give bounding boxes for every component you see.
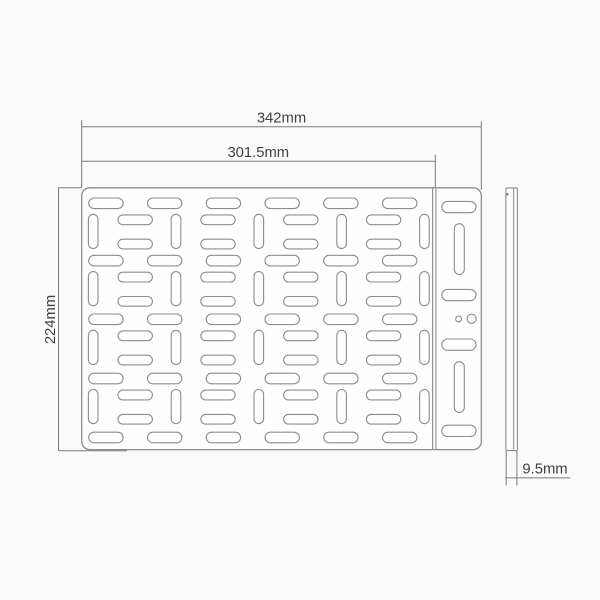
svg-text:342mm: 342mm: [257, 111, 306, 127]
svg-text:9.5mm: 9.5mm: [522, 461, 567, 477]
svg-text:301.5mm: 301.5mm: [227, 145, 289, 161]
svg-text:224mm: 224mm: [43, 295, 59, 344]
